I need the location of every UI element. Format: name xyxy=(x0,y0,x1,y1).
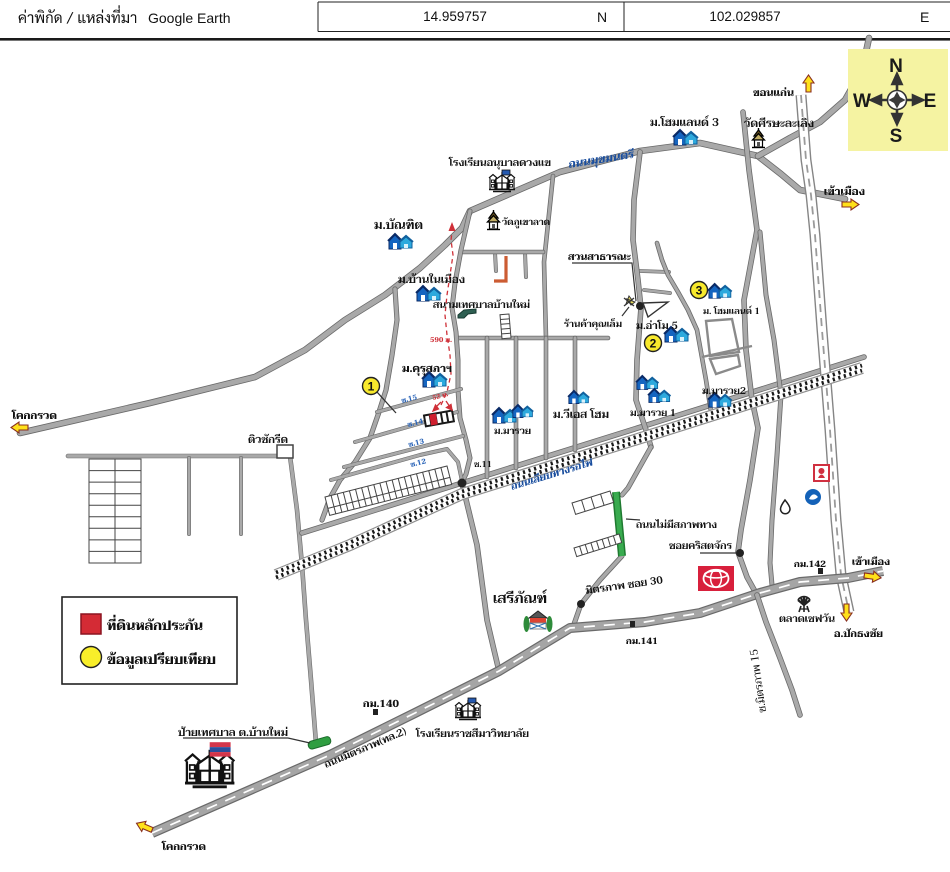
svg-text:102.029857: 102.029857 xyxy=(709,9,780,24)
svg-text:3: 3 xyxy=(696,284,703,298)
svg-text:Google Earth: Google Earth xyxy=(148,10,231,26)
svg-text:E: E xyxy=(920,9,929,25)
svg-text:E: E xyxy=(924,91,937,112)
svg-text:S: S xyxy=(890,126,903,147)
svg-text:N: N xyxy=(597,9,607,25)
svg-text:1: 1 xyxy=(368,380,375,394)
svg-text:2: 2 xyxy=(650,337,657,351)
svg-text:14.959757: 14.959757 xyxy=(423,9,487,24)
svg-text:W: W xyxy=(853,91,871,112)
svg-text:N: N xyxy=(889,56,903,77)
